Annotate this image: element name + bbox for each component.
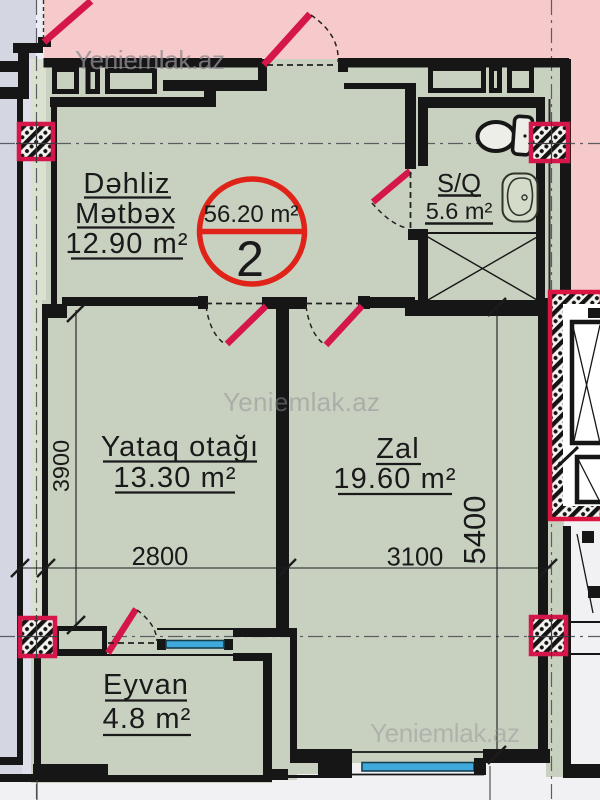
svg-text:S/Q: S/Q bbox=[437, 170, 481, 198]
svg-text:2: 2 bbox=[236, 231, 264, 287]
svg-text:Yeniemlak.az: Yeniemlak.az bbox=[75, 45, 225, 75]
svg-text:13.30 m²: 13.30 m² bbox=[113, 462, 236, 494]
svg-text:3900: 3900 bbox=[48, 440, 74, 492]
svg-text:19.60 m²: 19.60 m² bbox=[333, 463, 456, 495]
svg-text:Dəhliz: Dəhliz bbox=[83, 168, 170, 200]
svg-text:Mətbəx: Mətbəx bbox=[75, 198, 177, 230]
svg-text:Yataq otağı: Yataq otağı bbox=[101, 431, 259, 463]
svg-text:Yeniemlak.az: Yeniemlak.az bbox=[223, 387, 380, 417]
svg-text:5400: 5400 bbox=[457, 496, 492, 565]
svg-text:Eyvan: Eyvan bbox=[103, 669, 189, 701]
svg-text:3100: 3100 bbox=[387, 544, 444, 572]
svg-text:Yeniemlak.az: Yeniemlak.az bbox=[370, 718, 520, 748]
svg-text:56.20 m²: 56.20 m² bbox=[204, 201, 299, 228]
svg-text:5.6 m²: 5.6 m² bbox=[426, 198, 493, 224]
svg-text:Zal: Zal bbox=[376, 433, 420, 465]
svg-text:12.90 m²: 12.90 m² bbox=[65, 228, 188, 260]
svg-text:2800: 2800 bbox=[132, 543, 189, 571]
svg-text:4.8 m²: 4.8 m² bbox=[103, 703, 192, 735]
